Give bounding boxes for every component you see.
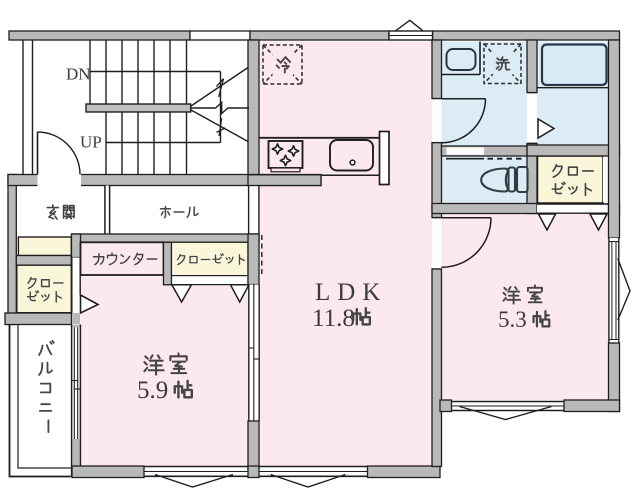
svg-text:UP: UP <box>80 133 102 152</box>
svg-text:LDK: LDK <box>315 279 387 306</box>
svg-text:5.9: 5.9 <box>137 377 168 404</box>
svg-text:11.8: 11.8 <box>312 305 355 332</box>
svg-text:DN: DN <box>66 65 91 84</box>
svg-text:5.3: 5.3 <box>498 307 527 332</box>
